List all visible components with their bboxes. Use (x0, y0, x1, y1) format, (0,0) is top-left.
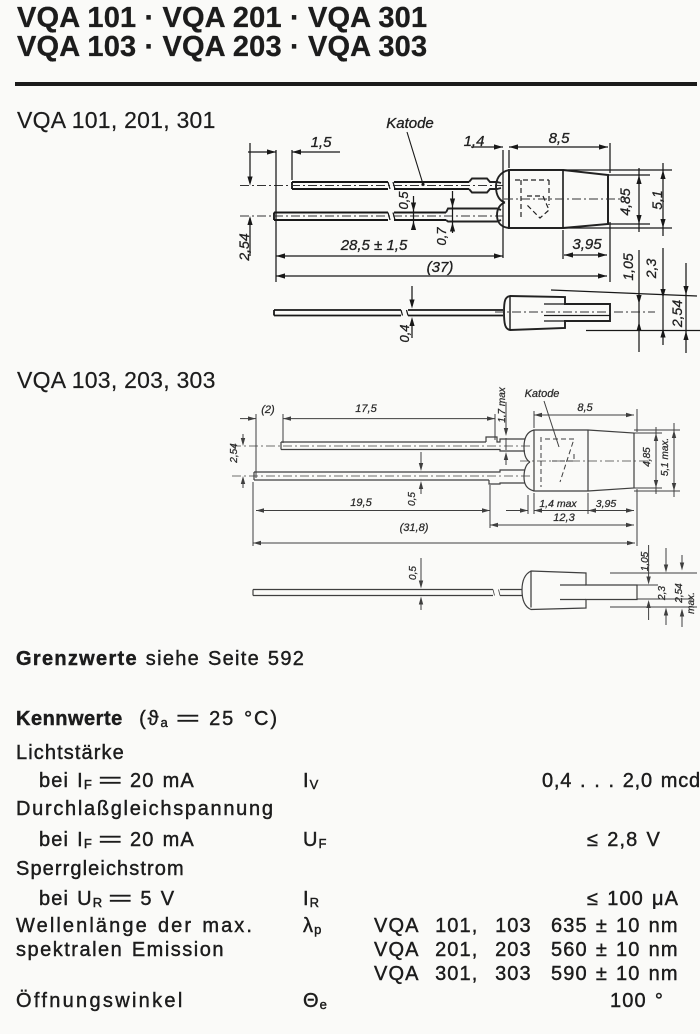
svg-text:19,5: 19,5 (350, 497, 372, 509)
svg-text:0,4: 0,4 (397, 324, 412, 342)
svg-text:0,5: 0,5 (407, 492, 418, 506)
svg-text:4,85: 4,85 (642, 447, 653, 467)
svg-text:1,7 max: 1,7 max (497, 386, 508, 423)
svg-text:1,4 max: 1,4 max (539, 498, 577, 510)
svg-text:28,5 ± 1,5: 28,5 ± 1,5 (340, 237, 408, 254)
svg-text:5,1: 5,1 (649, 190, 665, 209)
svg-text:1,5: 1,5 (311, 134, 333, 151)
svg-text:0,5: 0,5 (408, 566, 419, 580)
svg-text:8,5: 8,5 (577, 402, 593, 414)
svg-text:0,7: 0,7 (434, 227, 449, 246)
svg-text:2,54: 2,54 (229, 443, 240, 464)
svg-text:3,95: 3,95 (572, 236, 602, 253)
svg-text:2,3: 2,3 (657, 586, 668, 601)
svg-text:2,54: 2,54 (674, 583, 685, 604)
svg-text:8,5: 8,5 (549, 130, 571, 147)
svg-text:(2): (2) (261, 404, 275, 416)
svg-text:max.: max. (686, 592, 697, 614)
svg-text:1,4: 1,4 (464, 133, 485, 150)
svg-text:2,3: 2,3 (643, 259, 659, 280)
svg-text:2,54: 2,54 (669, 300, 685, 328)
svg-text:17,5: 17,5 (355, 403, 377, 415)
svg-text:(31,8): (31,8) (400, 522, 429, 534)
svg-text:5,1 max.: 5,1 max. (660, 438, 671, 476)
svg-text:1,05: 1,05 (640, 551, 651, 571)
svg-text:4,85: 4,85 (617, 188, 633, 215)
svg-text:0,5: 0,5 (396, 191, 411, 210)
svg-text:1,05: 1,05 (620, 253, 636, 280)
svg-text:Katode: Katode (525, 388, 560, 400)
svg-text:(37): (37) (427, 259, 454, 276)
svg-text:12,3: 12,3 (553, 512, 575, 524)
svg-text:3,95: 3,95 (596, 498, 617, 510)
svg-text:Katode: Katode (386, 115, 434, 132)
svg-text:2,54: 2,54 (236, 233, 252, 261)
